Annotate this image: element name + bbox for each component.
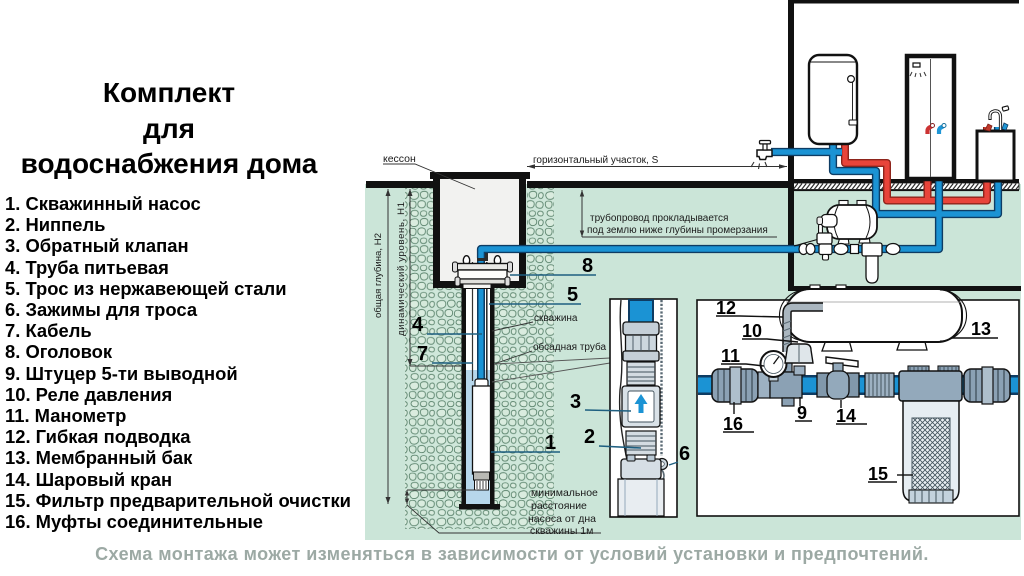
svg-text:11: 11 (721, 346, 740, 366)
svg-text:16: 16 (723, 414, 743, 434)
svg-text:1: 1 (545, 432, 556, 454)
svg-text:обсадная труба: обсадная труба (533, 341, 606, 353)
svg-text:10: 10 (742, 321, 762, 341)
svg-text:15: 15 (868, 464, 888, 484)
svg-text:расстояние: расстояние (531, 500, 587, 512)
svg-text:2: 2 (584, 426, 595, 448)
svg-text:9: 9 (797, 403, 807, 423)
svg-text:горизонтальный участок, S: горизонтальный участок, S (533, 155, 659, 166)
svg-text:7: 7 (417, 343, 428, 365)
svg-text:4: 4 (412, 314, 424, 336)
svg-text:под землю ниже глубины про: под землю ниже глубины промерзания (587, 224, 768, 236)
svg-text:общая глубина, Н2: общая глубина, Н2 (373, 233, 384, 318)
svg-text:кессон: кессон (383, 153, 416, 165)
svg-text:насоса от дна: насоса от дна (528, 513, 596, 525)
svg-text:14: 14 (836, 406, 856, 426)
svg-text:минимальное: минимальное (531, 487, 598, 499)
svg-text:динамический уровень, Н1: динамический уровень, Н1 (396, 202, 407, 336)
svg-text:6: 6 (679, 443, 690, 465)
svg-text:5: 5 (567, 284, 578, 306)
svg-text:12: 12 (716, 298, 736, 318)
svg-text:13: 13 (971, 319, 991, 339)
svg-text:3: 3 (570, 391, 581, 413)
svg-text:скважины 1м: скважины 1м (530, 525, 593, 537)
svg-text:трубопровод прокладывается: трубопровод прокладывается (590, 212, 728, 224)
svg-text:скважина: скважина (534, 313, 578, 324)
svg-text:8: 8 (582, 255, 593, 277)
